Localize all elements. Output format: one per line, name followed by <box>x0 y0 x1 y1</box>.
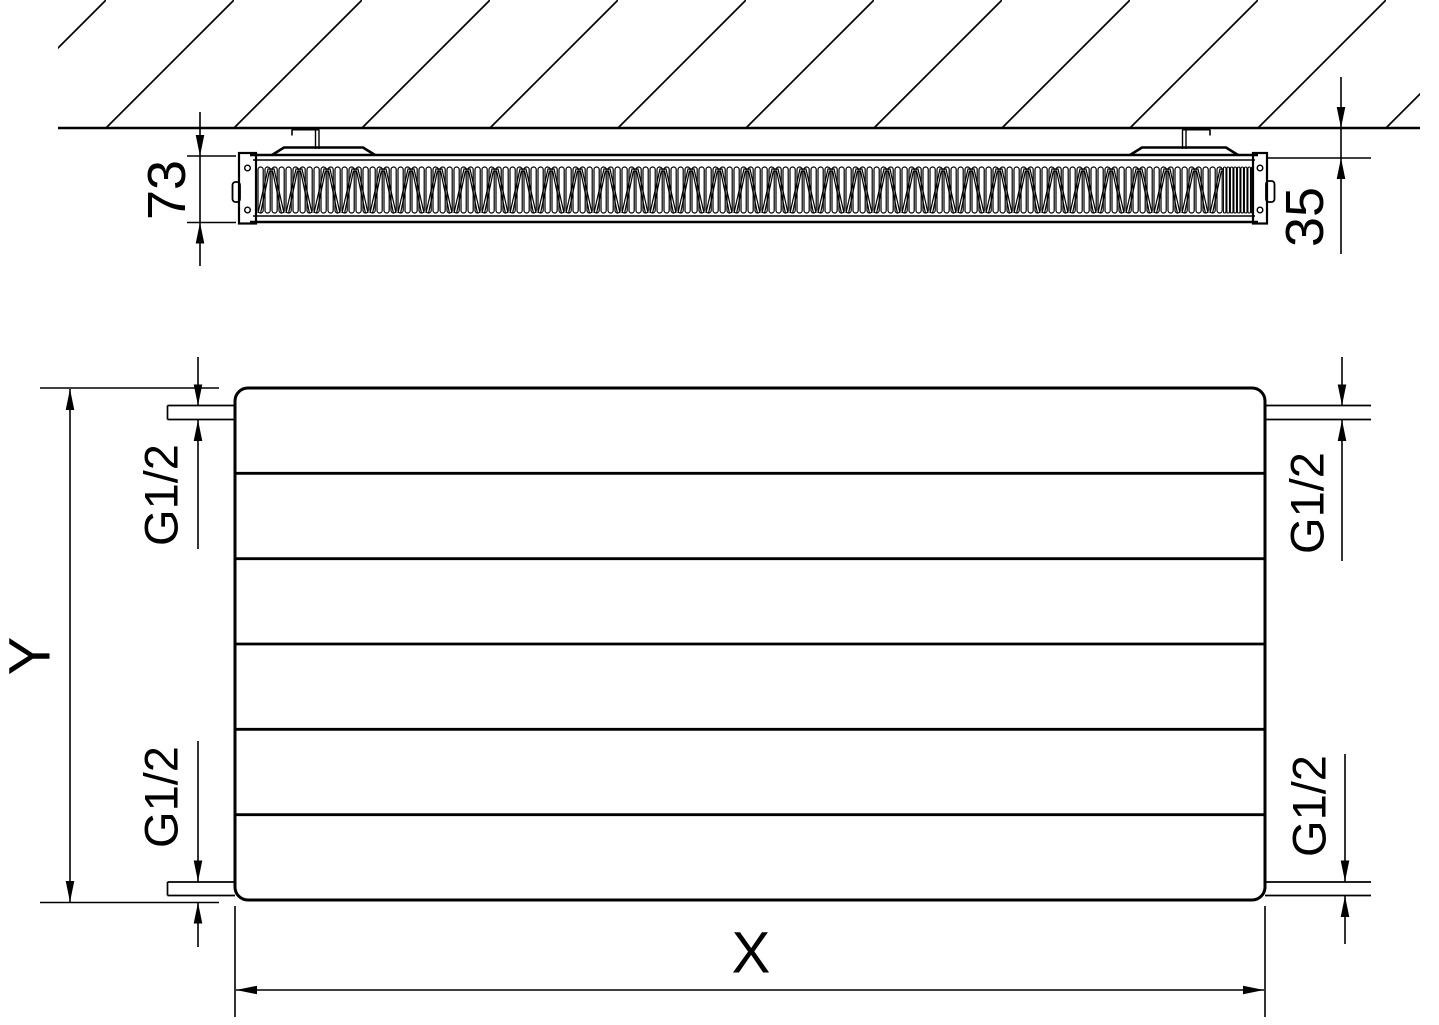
connection-stub-bottom-left <box>168 882 236 896</box>
dimension-connection-bottom-right: G1/2 <box>1283 754 1350 944</box>
front-view: Y X G1/2 G1/2 <box>0 357 1371 1017</box>
top-section-view: 73 35 <box>58 0 1420 266</box>
arrow-down-icon <box>1341 861 1350 882</box>
convector-fins-end-block <box>1223 166 1253 214</box>
arrow-left-icon <box>236 986 257 995</box>
connection-stub-top-right <box>1265 406 1371 420</box>
connection-thread-label: G1/2 <box>1281 452 1334 554</box>
dimension-connection-bottom-left: G1/2 <box>135 741 203 947</box>
connection-thread-label: G1/2 <box>135 444 188 546</box>
screw-hole-icon <box>1257 207 1263 213</box>
convector-fins <box>257 166 1253 214</box>
wall-hatching <box>58 0 1420 127</box>
arrow-down-icon <box>1338 385 1347 406</box>
dimension-width-x: X <box>235 906 1265 1017</box>
screw-hole-icon <box>245 165 251 171</box>
radiator-panel <box>235 388 1265 900</box>
arrow-up-icon <box>1341 896 1350 917</box>
end-cap-right <box>1253 153 1275 224</box>
arrow-up-icon <box>196 223 205 244</box>
arrow-down-icon <box>66 881 75 902</box>
connection-thread-label: G1/2 <box>135 746 188 848</box>
arrow-up-icon <box>194 420 203 441</box>
wall-clearance-dimension-label: 35 <box>1275 187 1335 247</box>
dimension-connection-top-right: G1/2 <box>1281 357 1347 561</box>
arrow-down-icon <box>196 135 205 156</box>
screw-hole-icon <box>245 207 251 213</box>
connection-stub-bottom-right <box>1265 882 1371 896</box>
connection-thread-label: G1/2 <box>1283 755 1336 857</box>
arrow-up-icon <box>1338 420 1347 441</box>
wall <box>58 0 1420 128</box>
connection-stub-top-left <box>168 406 236 420</box>
height-dimension-label: Y <box>0 637 63 676</box>
dimension-depth-73: 73 <box>137 112 236 266</box>
arrow-down-icon <box>194 861 203 882</box>
arrow-up-icon <box>66 389 75 410</box>
radiator-technical-drawing: 73 35 <box>0 0 1439 1025</box>
dimension-connection-top-left: G1/2 <box>135 357 203 549</box>
arrow-up-icon <box>1337 158 1346 179</box>
arrow-right-icon <box>1243 986 1264 995</box>
mounting-bracket-right <box>1130 130 1238 156</box>
radiator-section-body <box>233 130 1275 224</box>
width-dimension-label: X <box>732 921 771 986</box>
end-cap-left <box>233 153 257 224</box>
arrow-up-icon <box>194 903 203 924</box>
depth-dimension-label: 73 <box>137 160 197 220</box>
screw-hole-icon <box>1257 165 1263 171</box>
mounting-bracket-left <box>272 130 375 156</box>
arrow-down-icon <box>194 385 203 406</box>
